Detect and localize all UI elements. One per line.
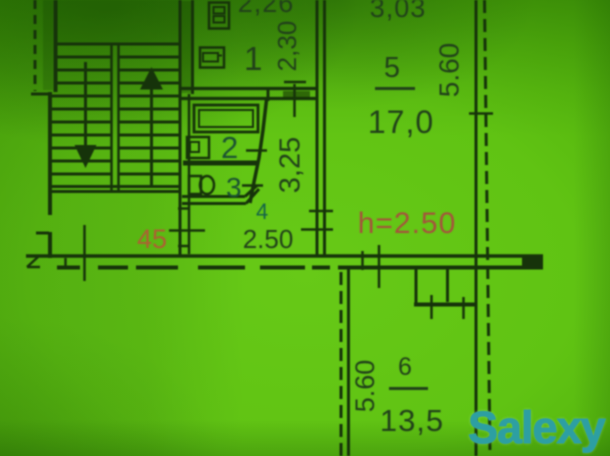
svg-text:3: 3 <box>226 172 242 203</box>
svg-text:5.60: 5.60 <box>433 43 464 98</box>
svg-text:17,0: 17,0 <box>368 104 434 140</box>
svg-text:2: 2 <box>221 130 238 165</box>
svg-text:13,5: 13,5 <box>380 403 444 438</box>
svg-text:3,25: 3,25 <box>275 137 307 193</box>
svg-text:2,30: 2,30 <box>272 21 302 72</box>
svg-text:3,03: 3,03 <box>370 0 427 23</box>
svg-text:45: 45 <box>137 224 167 254</box>
svg-text:5: 5 <box>384 52 400 84</box>
svg-text:6: 6 <box>398 353 412 381</box>
svg-text:2.50: 2.50 <box>243 224 294 254</box>
svg-text:5.60: 5.60 <box>350 360 380 413</box>
svg-text:2,26: 2,26 <box>238 0 295 18</box>
svg-text:4: 4 <box>256 199 268 224</box>
svg-text:1: 1 <box>244 40 262 77</box>
svg-text:h=2.50: h=2.50 <box>358 207 457 240</box>
